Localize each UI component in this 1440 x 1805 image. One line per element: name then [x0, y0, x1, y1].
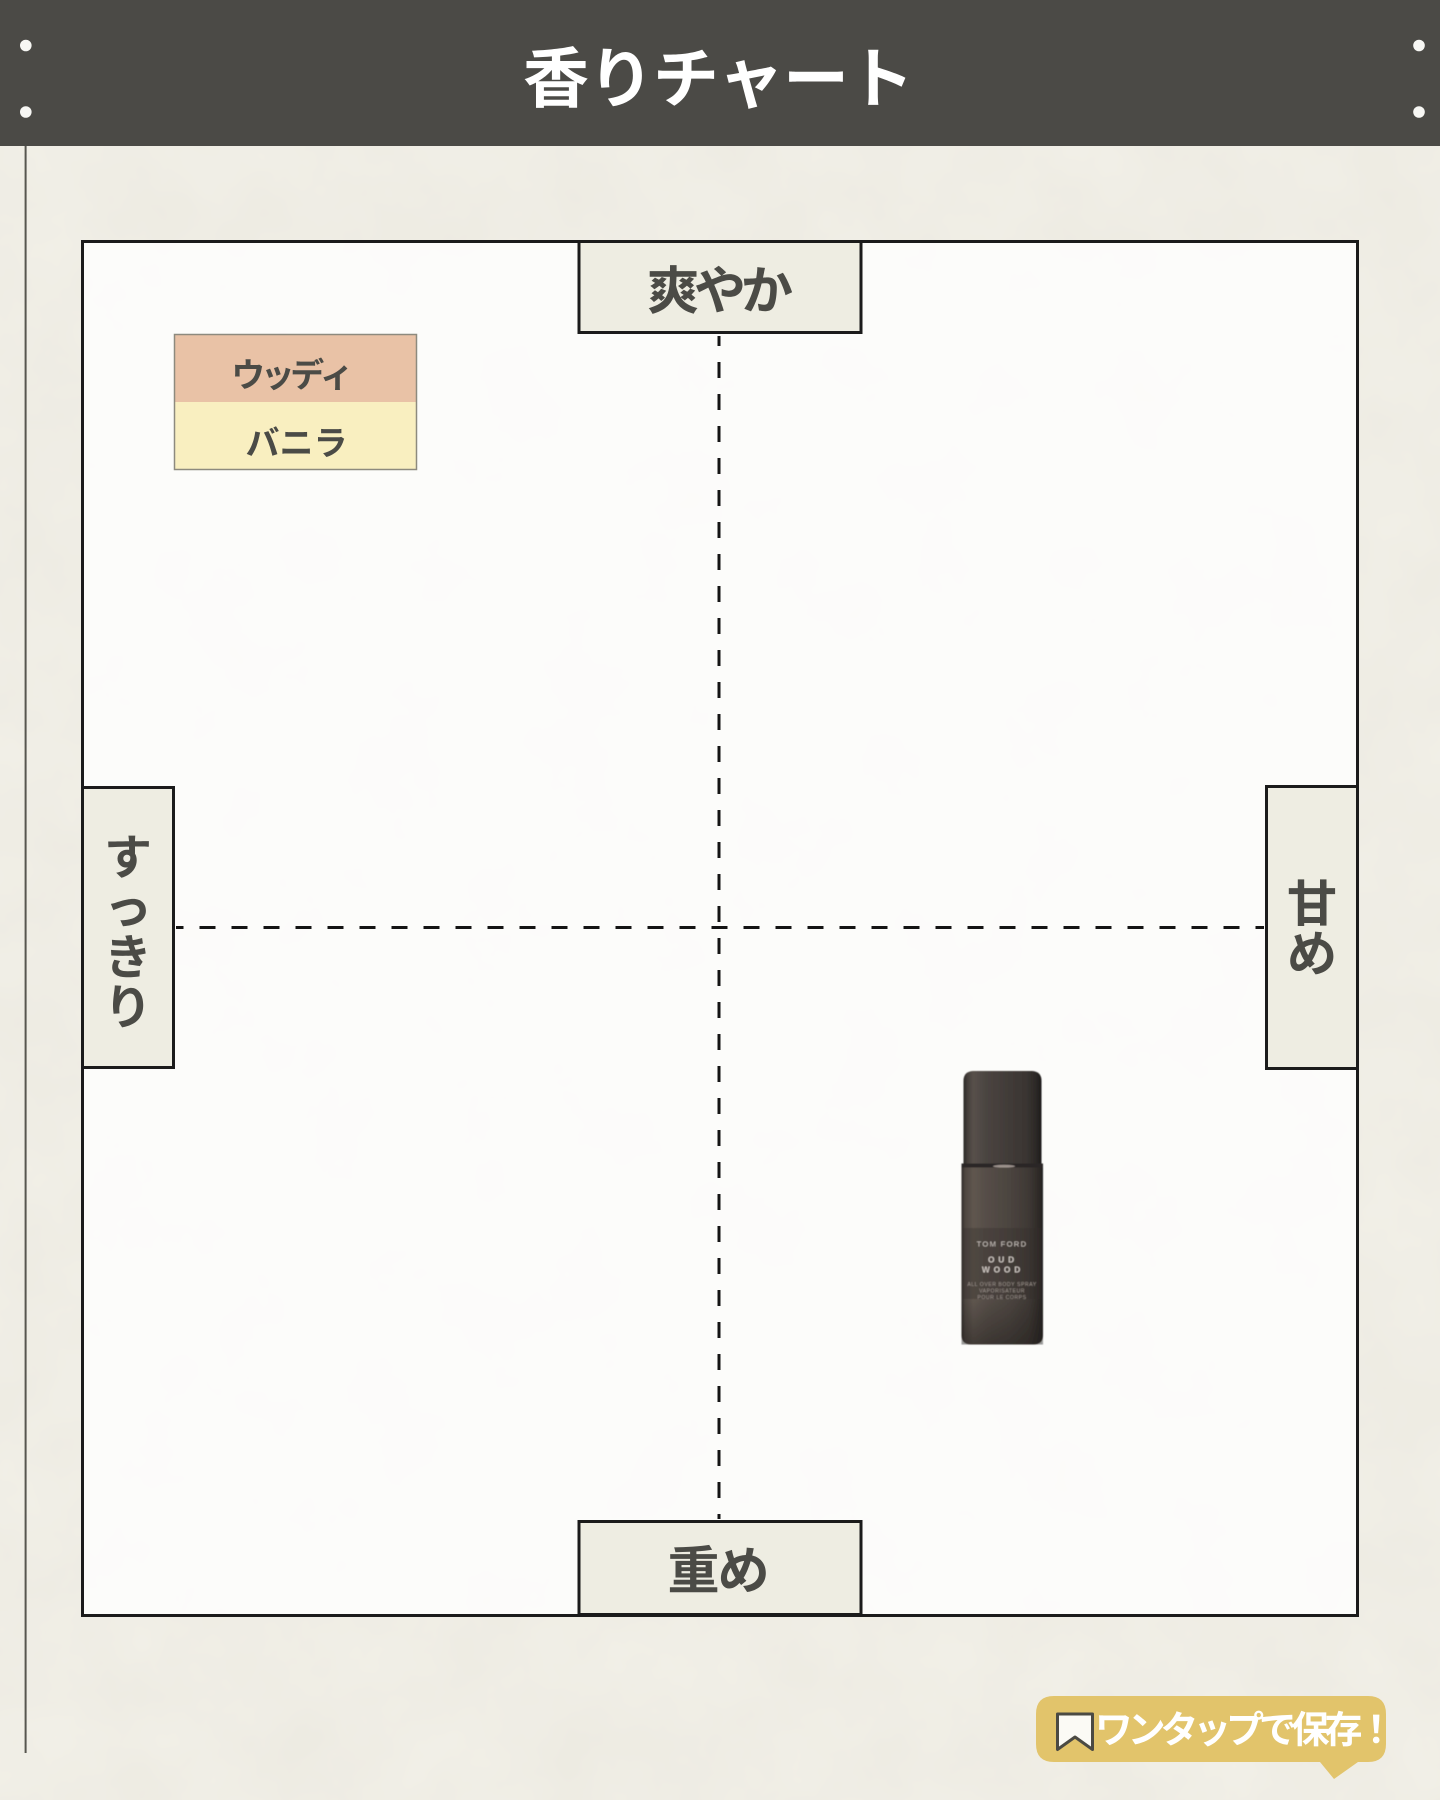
svg-text:VAPORISATEUR: VAPORISATEUR: [979, 1288, 1025, 1294]
svg-text:OUD: OUD: [988, 1255, 1018, 1265]
svg-text:POUR LE CORPS: POUR LE CORPS: [977, 1295, 1026, 1301]
svg-text:ALL OVER BODY SPRAY: ALL OVER BODY SPRAY: [967, 1282, 1036, 1288]
svg-text:WOOD: WOOD: [982, 1265, 1024, 1275]
svg-text:TOM FORD: TOM FORD: [977, 1240, 1028, 1249]
